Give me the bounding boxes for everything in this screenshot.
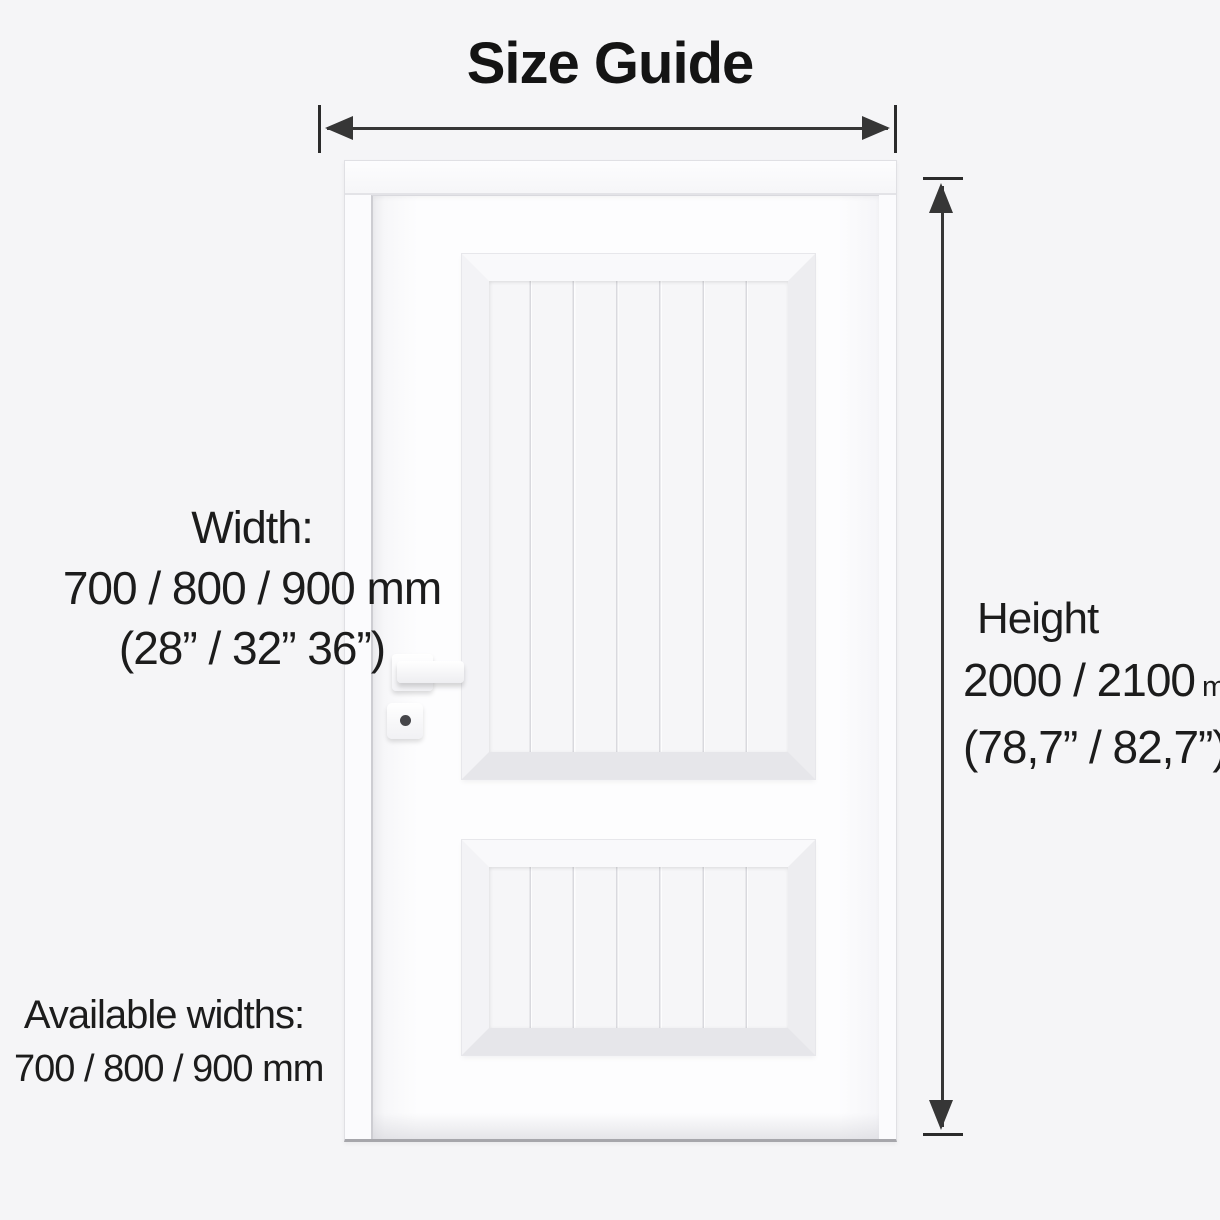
- arrowhead-right-icon: [862, 116, 890, 140]
- width-dimension-arrow: [318, 105, 897, 153]
- top-panel-planks: [489, 281, 788, 752]
- keyhole-icon: [400, 715, 411, 726]
- available-widths-block: Available widths: 700 / 800 / 900 mm: [14, 988, 314, 1096]
- available-widths-heading: Available widths:: [14, 988, 314, 1042]
- height-unit: mn: [1202, 671, 1220, 703]
- door-lintel: [345, 161, 896, 195]
- arrowhead-left-icon: [325, 116, 353, 140]
- height-arrow-line: [941, 186, 944, 1127]
- door-top-panel: [462, 254, 815, 779]
- door-bottom-panel: [462, 840, 815, 1055]
- height-imperial: (78,7” / 82,7”): [963, 717, 1220, 777]
- page-title: Size Guide: [0, 30, 1220, 97]
- arrowhead-down-icon: [929, 1100, 953, 1130]
- width-metric: 700 / 800 / 900 mm: [28, 558, 476, 618]
- height-arrow-bottom-tick: [923, 1133, 963, 1136]
- height-metric: 2000 / 2100mn: [963, 650, 1220, 717]
- height-heading: Height: [963, 588, 1220, 650]
- width-imperial: (28” / 32” 36”): [28, 618, 476, 678]
- height-arrow-top-tick: [923, 177, 963, 180]
- height-label-block: Height 2000 / 2100mn (78,7” / 82,7”): [963, 588, 1220, 777]
- size-guide-infographic: Size Guide Width:: [0, 0, 1220, 1220]
- width-label-block: Width: 700 / 800 / 900 mm (28” / 32” 36”…: [28, 498, 476, 678]
- width-heading: Width:: [28, 498, 476, 558]
- width-arrow-left-tick: [318, 105, 321, 153]
- arrowhead-up-icon: [929, 183, 953, 213]
- width-arrow-right-tick: [894, 105, 897, 153]
- bottom-panel-planks: [489, 867, 788, 1028]
- height-dimension-arrow: [921, 177, 965, 1136]
- door-keyhole-plate: [387, 703, 423, 739]
- width-arrow-line: [327, 127, 888, 130]
- door-bottom-shade: [373, 1113, 879, 1139]
- available-widths-metric: 700 / 800 / 900 mm: [14, 1042, 314, 1096]
